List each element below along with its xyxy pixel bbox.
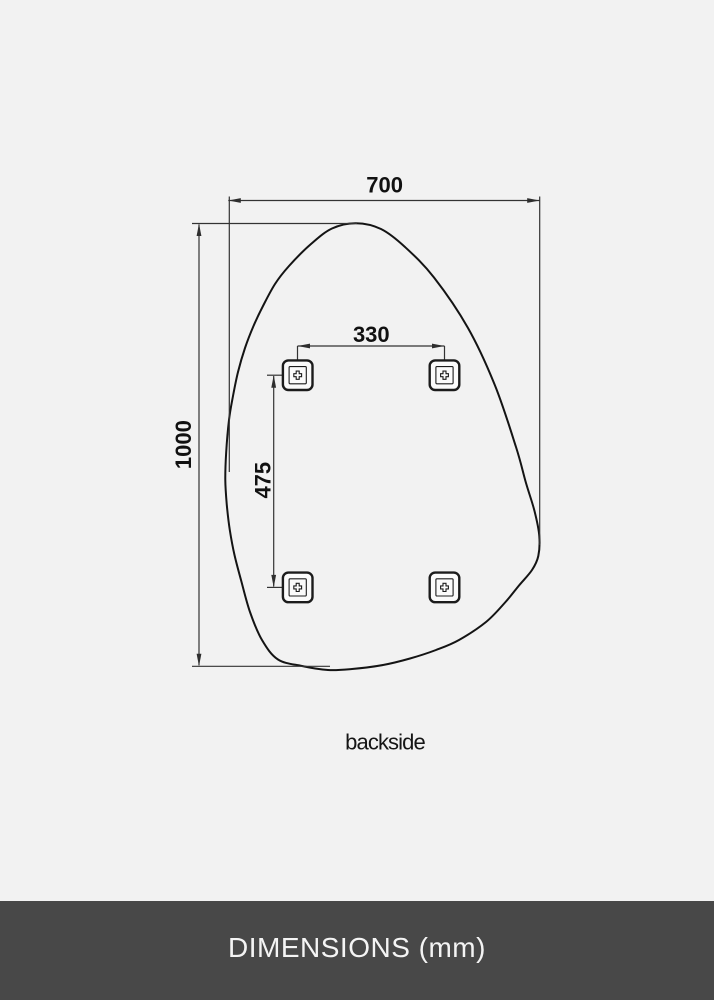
svg-text:backside: backside [345,730,425,755]
svg-text:330: 330 [353,322,390,347]
svg-text:700: 700 [366,173,403,198]
svg-text:1000: 1000 [171,420,196,469]
svg-text:475: 475 [250,462,275,499]
